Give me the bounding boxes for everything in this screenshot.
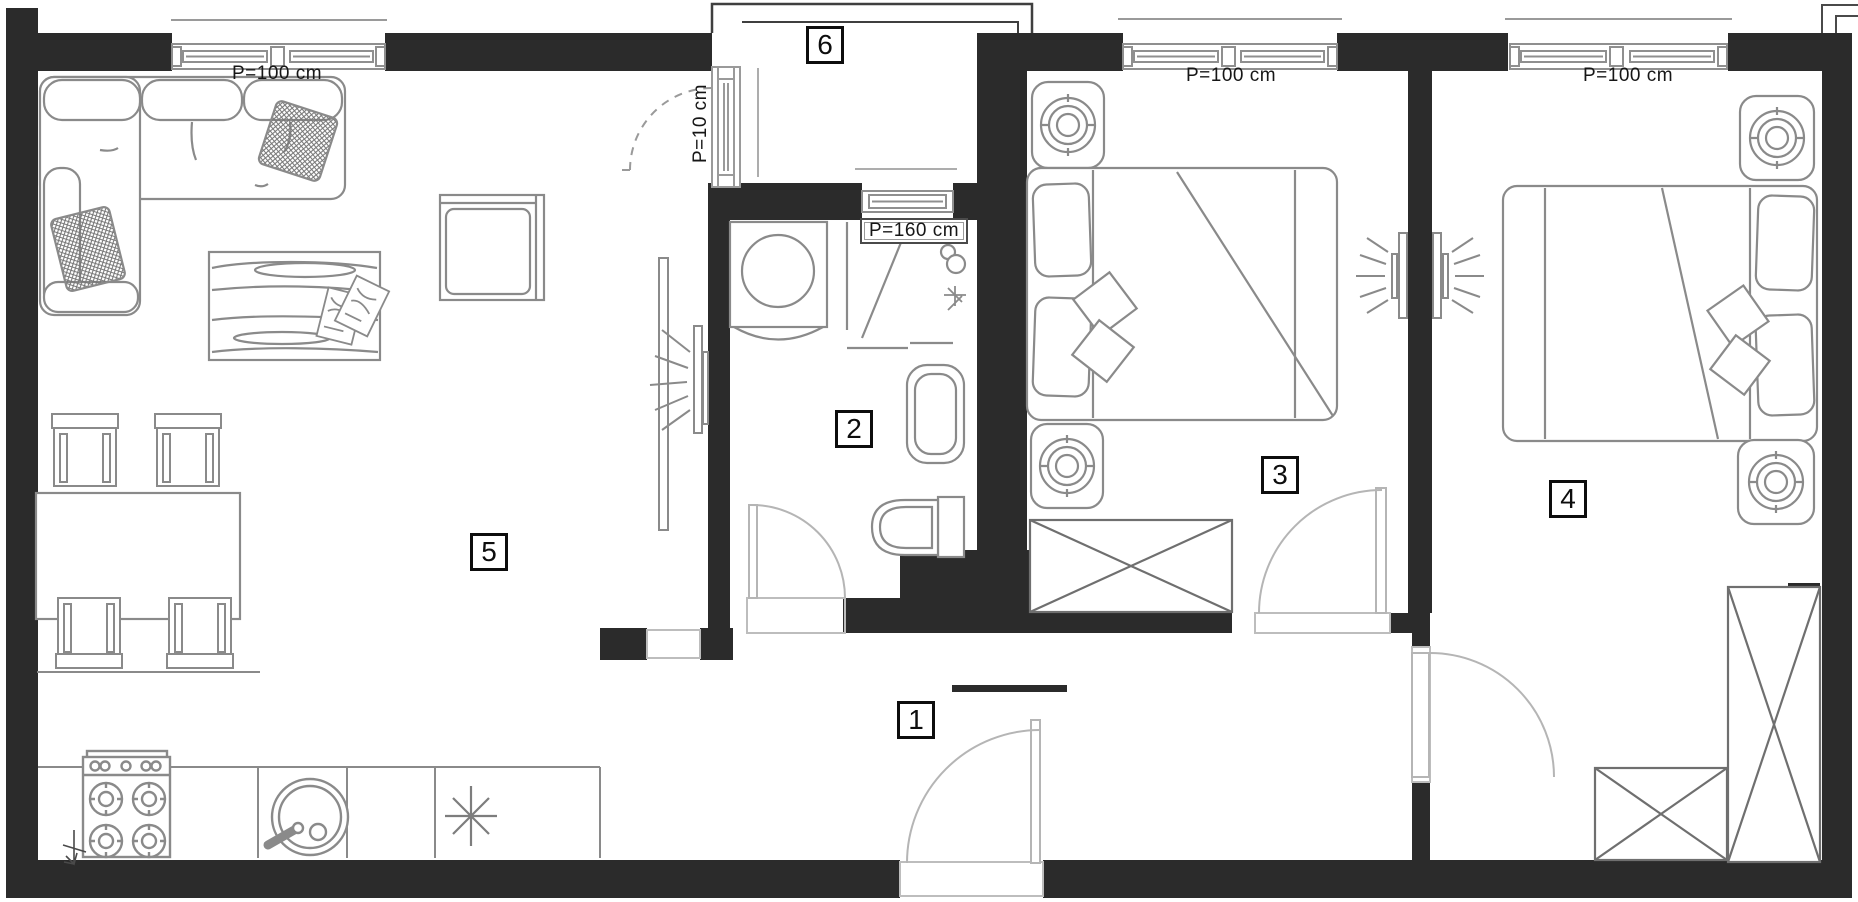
- nightstand-lamp: [1031, 424, 1103, 508]
- room-label-6-balcony: 6: [806, 26, 844, 64]
- tv-bedroom3-icon: [1356, 233, 1407, 318]
- chair: [167, 598, 233, 668]
- wardrobe: [1030, 520, 1232, 612]
- wall-hall-top-a: [843, 598, 963, 633]
- stove: [83, 751, 170, 857]
- kitchen-sink: [268, 779, 348, 855]
- room-number: 3: [1272, 461, 1288, 489]
- threshold-kitchen-hall: [647, 630, 700, 658]
- balcony-floor-lines: [758, 68, 957, 177]
- dim-living-window: P=100 cm: [232, 63, 322, 85]
- window-bathroom: [862, 191, 953, 212]
- wardrobe: [1728, 587, 1820, 862]
- balcony-outline: [712, 4, 1032, 33]
- wall-top-living-a: [6, 33, 172, 71]
- wall-bottom-left: [6, 860, 900, 898]
- dim-bedroom4-window: P=100 cm: [1583, 65, 1673, 87]
- room-label-3-bedroom: 3: [1261, 456, 1299, 494]
- wall-bathroom-west: [708, 183, 730, 633]
- chair: [56, 598, 122, 668]
- room-label-2-bathroom: 2: [835, 410, 873, 448]
- wall-top-left-pilaster: [6, 8, 38, 33]
- dim-bathroom-window: P=160 cm: [860, 218, 968, 244]
- wall-left: [6, 33, 38, 862]
- entrance-mat-line: [952, 685, 1067, 692]
- bathroom-sink: [907, 365, 964, 463]
- room-label-4-bedroom: 4: [1549, 480, 1587, 518]
- floor-plan: 1 2 3 4 5 6 P=100 cm P=100 cm P=100 cm P…: [0, 0, 1858, 902]
- tv-bench: [659, 258, 668, 530]
- tv-bedroom4-icon: [1433, 233, 1484, 318]
- wall-hall-top-stub: [1390, 613, 1412, 633]
- wall-hall-top-b: [1030, 613, 1232, 633]
- wall-hall-east-top: [1412, 613, 1430, 647]
- wall-bathroom-east: [977, 33, 1027, 553]
- door-balcony: [622, 67, 740, 187]
- washing-machine: [730, 222, 827, 340]
- wardrobe: [1595, 768, 1727, 860]
- bed: [1027, 168, 1337, 420]
- threshold-bathroom: [747, 598, 845, 633]
- room-label-1-hallway: 1: [897, 701, 935, 739]
- coffee-table: [209, 252, 389, 360]
- chair: [155, 414, 221, 486]
- wall-divider-bedrooms: [1408, 33, 1432, 613]
- room-number: 6: [817, 31, 833, 59]
- wall-top-bedroom3-a: [1027, 33, 1123, 71]
- armchair: [440, 195, 544, 300]
- wall-hall-east-bottom: [1412, 782, 1430, 860]
- room-number: 2: [846, 415, 862, 443]
- room-number: 5: [481, 538, 497, 566]
- pillow: [1755, 195, 1814, 291]
- wall-hall-stub: [700, 628, 733, 660]
- exterior-outline: [171, 5, 1858, 33]
- door-bedroom4: [1412, 653, 1554, 777]
- nightstand-lamp: [1032, 82, 1104, 168]
- threshold-bedroom3: [1255, 613, 1390, 633]
- chair: [52, 414, 118, 486]
- bedroom3-furniture: [1027, 82, 1337, 612]
- threshold-entrance: [900, 862, 1043, 896]
- wall-right: [1822, 33, 1852, 898]
- door-bathroom: [749, 505, 845, 598]
- room-number: 1: [908, 706, 924, 734]
- wall-bottom-right: [1043, 860, 1852, 898]
- dim-bedroom3-window: P=100 cm: [1186, 65, 1276, 87]
- toilet: [872, 497, 964, 557]
- wall-balcony-bath-left: [712, 183, 862, 220]
- wall-top-living-b: [385, 33, 712, 71]
- nightstand-lamp: [1738, 440, 1814, 524]
- dim-balcony-door: P=10 cm: [690, 85, 712, 163]
- room-number: 4: [1560, 485, 1576, 513]
- light-symbol: [445, 786, 497, 846]
- bed: [1503, 186, 1817, 441]
- wall-kitchen-stub: [600, 628, 647, 660]
- room-label-5-living-room: 5: [470, 533, 508, 571]
- door-bedroom3: [1259, 488, 1386, 613]
- pillow: [1032, 183, 1091, 277]
- nightstand-lamp: [1740, 96, 1814, 180]
- floor-plan-drawing: [0, 0, 1858, 902]
- door-entrance: [907, 720, 1040, 863]
